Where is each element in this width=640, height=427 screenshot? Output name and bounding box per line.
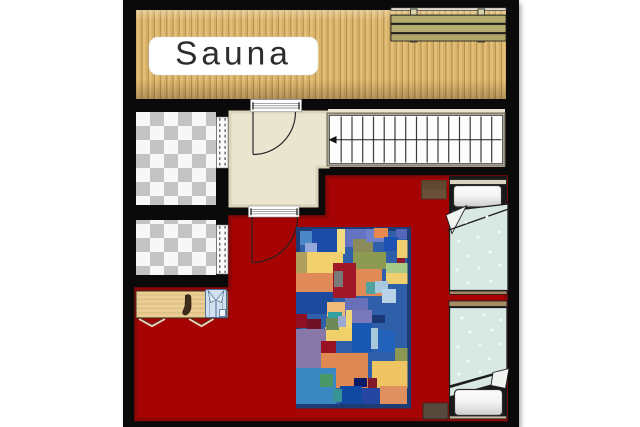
svg-text:Sauna: Sauna <box>175 36 292 73</box>
